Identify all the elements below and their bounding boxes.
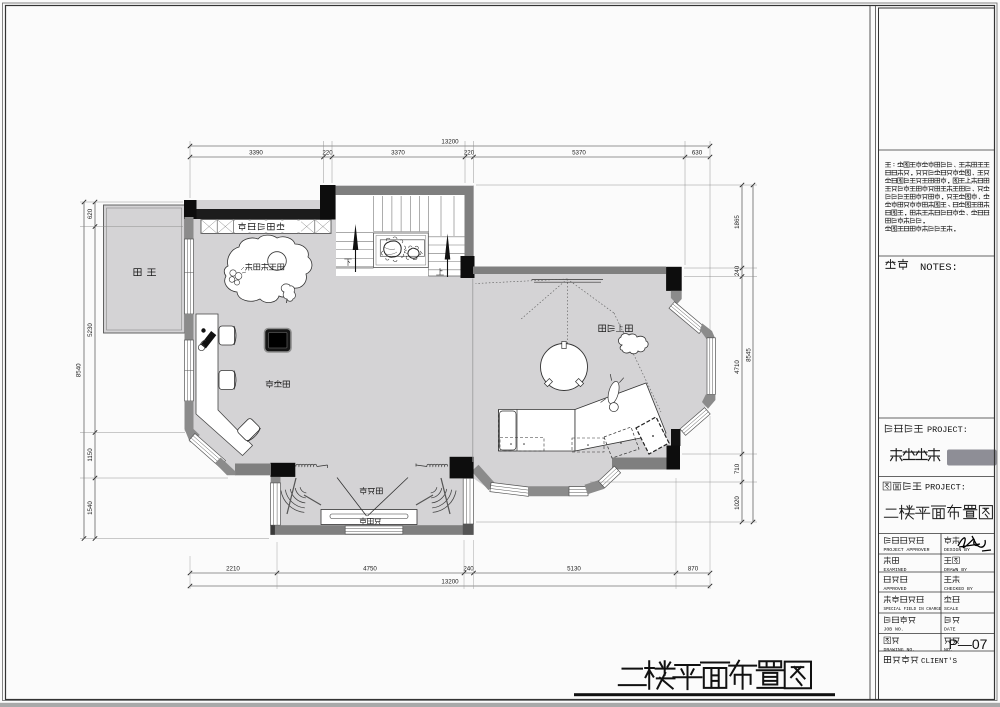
svg-text:DRAWING NO.: DRAWING NO. <box>884 647 916 653</box>
svg-text:APPROVED: APPROVED <box>884 586 907 592</box>
svg-text:4710: 4710 <box>734 360 741 374</box>
svg-text:PROJECT APPROVER: PROJECT APPROVER <box>884 547 930 553</box>
svg-text:2210: 2210 <box>226 566 240 573</box>
svg-text:SCALE: SCALE <box>944 606 959 612</box>
svg-text:PROJECT:: PROJECT: <box>925 483 966 493</box>
svg-text:8545: 8545 <box>746 348 753 362</box>
svg-text:1150: 1150 <box>87 448 94 462</box>
svg-text:5130: 5130 <box>567 566 581 573</box>
svg-text:13200: 13200 <box>441 579 459 586</box>
svg-text:CLIENT'S: CLIENT'S <box>921 658 958 666</box>
svg-text:240: 240 <box>734 265 741 276</box>
svg-text:5370: 5370 <box>572 150 586 157</box>
svg-text:3390: 3390 <box>249 150 263 157</box>
svg-text:220: 220 <box>322 150 333 157</box>
svg-text:3370: 3370 <box>391 150 405 157</box>
svg-text:630: 630 <box>692 150 703 157</box>
svg-text:CHECKED BY: CHECKED BY <box>944 586 973 592</box>
svg-text:PROJECT:: PROJECT: <box>927 425 968 435</box>
svg-text:DATE: DATE <box>944 627 956 633</box>
svg-text:SPECIAL FIELD IN CHARGE: SPECIAL FIELD IN CHARGE <box>884 608 942 612</box>
svg-text:P—07: P—07 <box>949 636 988 652</box>
svg-text:DESIGN BY: DESIGN BY <box>944 547 970 553</box>
svg-text:1865: 1865 <box>734 215 741 229</box>
svg-text:620: 620 <box>87 208 94 219</box>
svg-text:JOB NO.: JOB NO. <box>884 627 904 633</box>
svg-text:4750: 4750 <box>363 566 377 573</box>
svg-text:EXAMINED: EXAMINED <box>884 567 907 573</box>
svg-text:5230: 5230 <box>87 323 94 337</box>
svg-text:870: 870 <box>688 566 699 573</box>
svg-text:220: 220 <box>464 150 475 157</box>
svg-text:8540: 8540 <box>76 363 83 377</box>
svg-text:NOTES:: NOTES: <box>920 262 958 274</box>
svg-text:1020: 1020 <box>734 496 741 510</box>
svg-text:1540: 1540 <box>87 501 94 515</box>
svg-text:DRAWN BY: DRAWN BY <box>944 567 967 573</box>
svg-text:240: 240 <box>463 566 474 573</box>
svg-text:710: 710 <box>734 463 741 474</box>
svg-text:13200: 13200 <box>441 139 459 146</box>
